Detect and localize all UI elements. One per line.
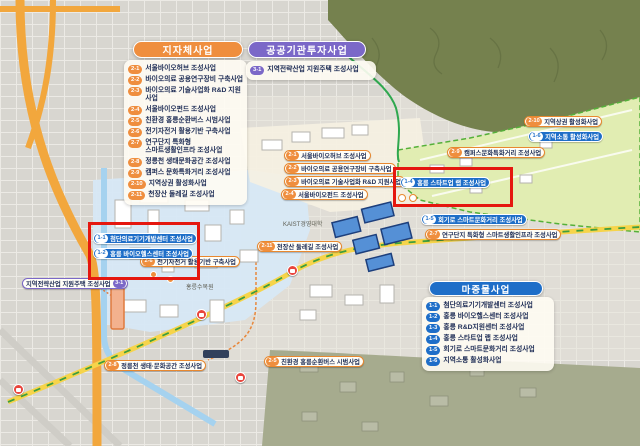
item-number-badge: 2-2 <box>128 76 142 85</box>
item-label: 연구단지 특화형 스마트생활인프라 조성사업 <box>145 139 222 156</box>
support-housing-site <box>111 284 124 329</box>
map-callout-2-7: 2-7연구단지 특화형 스마트생활인프라 조성사업 <box>425 229 561 240</box>
map-callout-2-3: 2-3바이오의료 기술사업화 R&D 지원사업 <box>284 176 405 187</box>
item-label: 서울바이오허브 조성사업 <box>145 65 216 73</box>
item-label: 캠퍼스 문화특화거리 조성사업 <box>145 169 230 177</box>
item-label: 홍릉 바이오헬스센터 조성사업 <box>443 313 528 321</box>
item-label: 천장산 둘레길 조성사업 <box>148 191 214 199</box>
panel-header-local-gov: 지자체사업 <box>133 41 243 58</box>
map-callout-2-1: 2-1서울바이오허브 조성사업 <box>284 150 371 161</box>
panel-item-2-7: 2-7연구단지 특화형 스마트생활인프라 조성사업 <box>128 139 243 156</box>
place-label-arboretum: 홍릉수목원 <box>186 282 214 291</box>
item-number-badge: 2-4 <box>128 106 142 115</box>
panel-item-2-9: 2-9캠퍼스 문화특화거리 조성사업 <box>128 169 243 178</box>
map-callout-2-11: 2-11천장산 둘레길 조성사업 <box>257 241 342 252</box>
item-number-badge: 2-1 <box>128 65 142 74</box>
item-number-badge: 2-6 <box>128 128 142 137</box>
item-number-badge: 1-6 <box>426 357 440 366</box>
panel-item-2-5: 2-5친환경 홍릉순환버스 시범사업 <box>128 117 243 126</box>
panel-item-1-5: 1-5회기로 스마트문화거리 조성사업 <box>426 346 550 355</box>
item-label: 바이오의료 기술사업화 R&D 지원사업 <box>145 87 243 104</box>
item-label: 서울바이오펀드 조성사업 <box>145 106 216 114</box>
map-callout-1-6: 1-6지역소통 활성화사업 <box>528 131 603 142</box>
item-label: 홍릉 스타트업 랩 조성사업 <box>443 335 517 343</box>
item-label: 전기자전거 활용기반 구축사업 <box>145 128 230 136</box>
bus-stop-icon <box>13 384 24 395</box>
item-number-badge: 2-7 <box>128 139 142 148</box>
map-callout-2-8: 2-8정릉천 생태·문화공간 조성사업 <box>104 360 206 371</box>
item-number-badge: 1-5 <box>426 346 440 355</box>
item-number-badge: 2-11 <box>128 191 145 200</box>
item-number-badge: 2-9 <box>128 169 142 178</box>
panel-item-2-6: 2-6전기자전거 활용기반 구축사업 <box>128 128 243 137</box>
item-label: 바이오의료 공용연구장비 구축사업 <box>145 76 243 84</box>
map-callout-2-2: 2-2바이오의료 공용연구장비 구축사업 <box>284 163 396 174</box>
map-callout-2-10: 2-10지역상권 활성화사업 <box>524 116 602 127</box>
item-label: 정릉천 생태문화공간 조성사업 <box>145 158 230 166</box>
panel-header-public-inst: 공공기관투자사업 <box>248 41 366 58</box>
place-label-kaist: KAIST경영대학 <box>283 219 322 228</box>
item-number-badge: 2-8 <box>128 158 142 167</box>
item-number-badge: 1-3 <box>426 324 440 333</box>
panel-item-1-1: 1-1첨단의료기기개발센터 조성사업 <box>426 302 550 311</box>
panel-item-2-3: 2-3바이오의료 기술사업화 R&D 지원사업 <box>128 87 243 104</box>
road-sign <box>203 350 229 358</box>
item-label: 첨단의료기기개발센터 조성사업 <box>443 302 532 310</box>
highlight-box-right <box>393 167 513 207</box>
hongneung-plan-map: 홍릉수목원 KAIST경영대학 2-1서울바이오허브 조성사업 2-2바이오의료… <box>0 0 640 446</box>
panel-item-1-6: 1-6지역소통 활성화사업 <box>426 357 550 366</box>
map-callout-2-4: 2-4서울바이오펀드 조성사업 <box>281 189 368 200</box>
panel-item-1-2: 1-2홍릉 바이오헬스센터 조성사업 <box>426 313 550 322</box>
item-number-badge: 1-1 <box>426 302 440 311</box>
panel-item-2-2: 2-2바이오의료 공용연구장비 구축사업 <box>128 76 243 85</box>
priming-panel: 1-1첨단의료기기개발센터 조성사업1-2홍릉 바이오헬스센터 조성사업1-3홍… <box>422 297 554 371</box>
panel-item-3-1: 3-1지역전략산업 지원주택 조성사업 <box>250 66 372 75</box>
panel-item-2-4: 2-4서울바이오펀드 조성사업 <box>128 106 243 115</box>
panel-item-2-1: 2-1서울바이오허브 조성사업 <box>128 65 243 74</box>
panel-item-2-11: 2-11천장산 둘레길 조성사업 <box>128 191 243 200</box>
item-label: 친환경 홍릉순환버스 시범사업 <box>145 117 230 125</box>
panel-header-priming: 마중물사업 <box>429 281 543 296</box>
panel-item-2-10: 2-10지역상권 활성화사업 <box>128 180 243 189</box>
item-label: 홍릉 R&D지원센터 조성사업 <box>443 324 524 332</box>
bus-stop-icon <box>287 265 298 276</box>
map-callout-1-5: 1-5회기로 스마트문화거리 조성사업 <box>421 214 527 225</box>
item-number-badge: 2-10 <box>128 180 146 189</box>
map-callout-2-9: 2-9캠퍼스문화특화거리 조성사업 <box>447 147 545 158</box>
bus-stop-icon <box>196 309 207 320</box>
bus-stop-icon <box>235 372 246 383</box>
item-number-badge: 2-3 <box>128 87 142 96</box>
local-gov-panel: 2-1서울바이오허브 조성사업2-2바이오의료 공용연구장비 구축사업2-3바이… <box>124 60 247 205</box>
item-number-badge: 3-1 <box>250 66 264 75</box>
panel-item-2-8: 2-8정릉천 생태문화공간 조성사업 <box>128 158 243 167</box>
item-number-badge: 1-2 <box>426 313 440 322</box>
item-label: 지역상권 활성화사업 <box>149 180 207 188</box>
item-label: 회기로 스마트문화거리 조성사업 <box>443 346 534 354</box>
map-callout-2-5: 2-5친환경 홍릉순환버스 시범사업 <box>264 356 364 367</box>
item-number-badge: 2-5 <box>128 117 142 126</box>
public-inst-panel: 3-1지역전략산업 지원주택 조성사업 <box>246 61 376 80</box>
item-label: 지역전략산업 지원주택 조성사업 <box>267 66 358 74</box>
item-number-badge: 1-4 <box>426 335 440 344</box>
highlight-box-left <box>88 222 200 280</box>
item-label: 지역소통 활성화사업 <box>443 357 501 365</box>
panel-item-1-3: 1-3홍릉 R&D지원센터 조성사업 <box>426 324 550 333</box>
panel-item-1-4: 1-4홍릉 스타트업 랩 조성사업 <box>426 335 550 344</box>
